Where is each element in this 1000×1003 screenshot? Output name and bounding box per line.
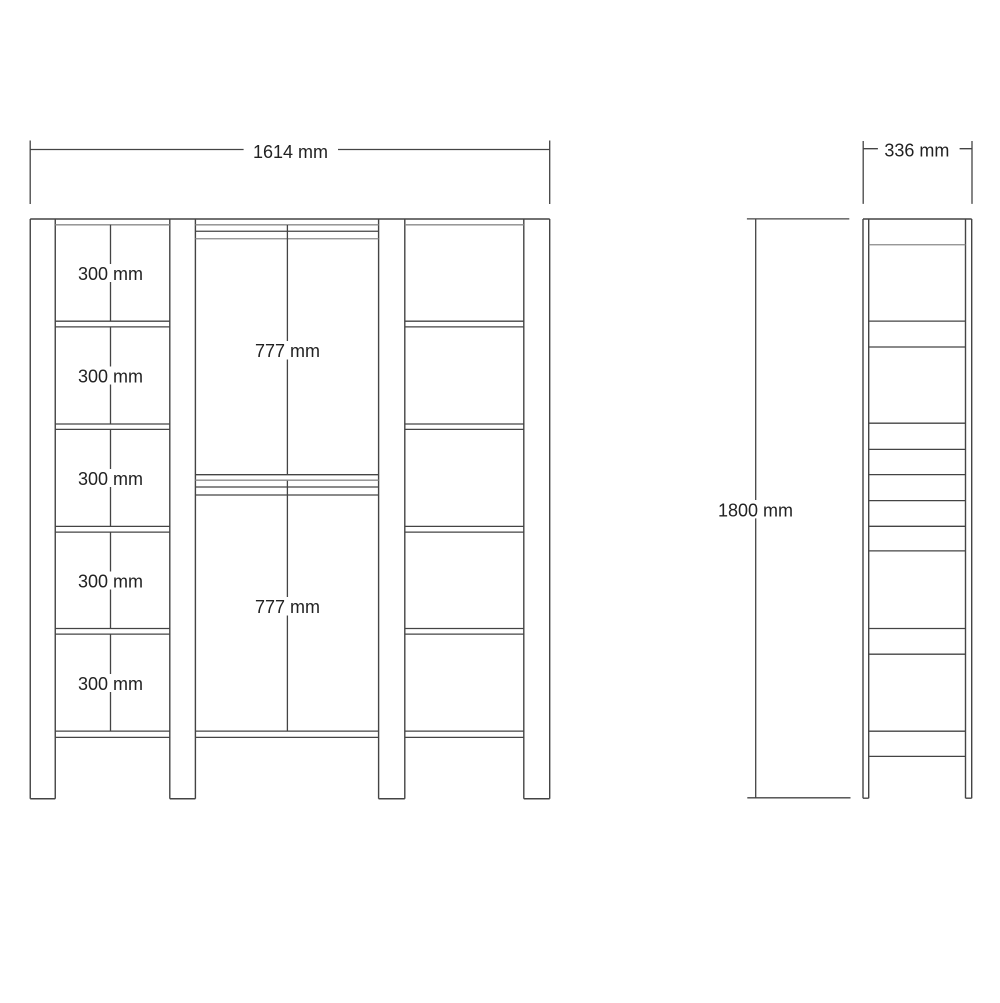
svg-text:336 mm: 336 mm — [884, 141, 949, 161]
svg-text:300 mm: 300 mm — [78, 674, 143, 694]
svg-text:777 mm: 777 mm — [255, 341, 320, 361]
svg-text:300 mm: 300 mm — [78, 571, 143, 591]
svg-text:300 mm: 300 mm — [78, 366, 143, 386]
svg-text:1800 mm: 1800 mm — [718, 500, 793, 520]
svg-text:1614 mm: 1614 mm — [253, 142, 328, 162]
svg-text:300 mm: 300 mm — [78, 469, 143, 489]
svg-text:300 mm: 300 mm — [78, 264, 143, 284]
svg-text:777 mm: 777 mm — [255, 597, 320, 617]
